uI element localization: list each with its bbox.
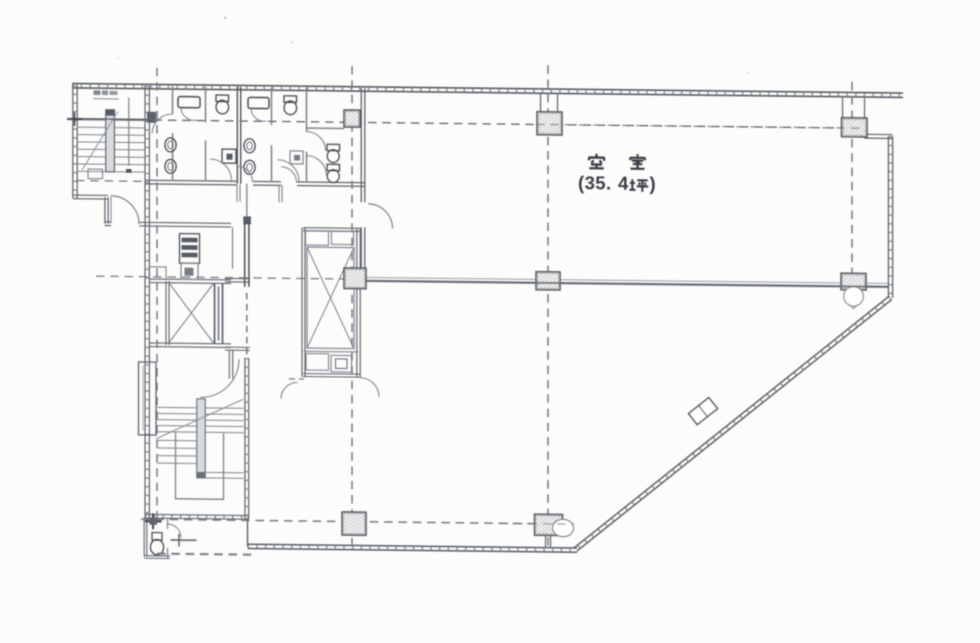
svg-text:(35.: (35. [578,172,611,193]
svg-text:4: 4 [618,173,629,194]
svg-text:): ) [650,173,656,194]
